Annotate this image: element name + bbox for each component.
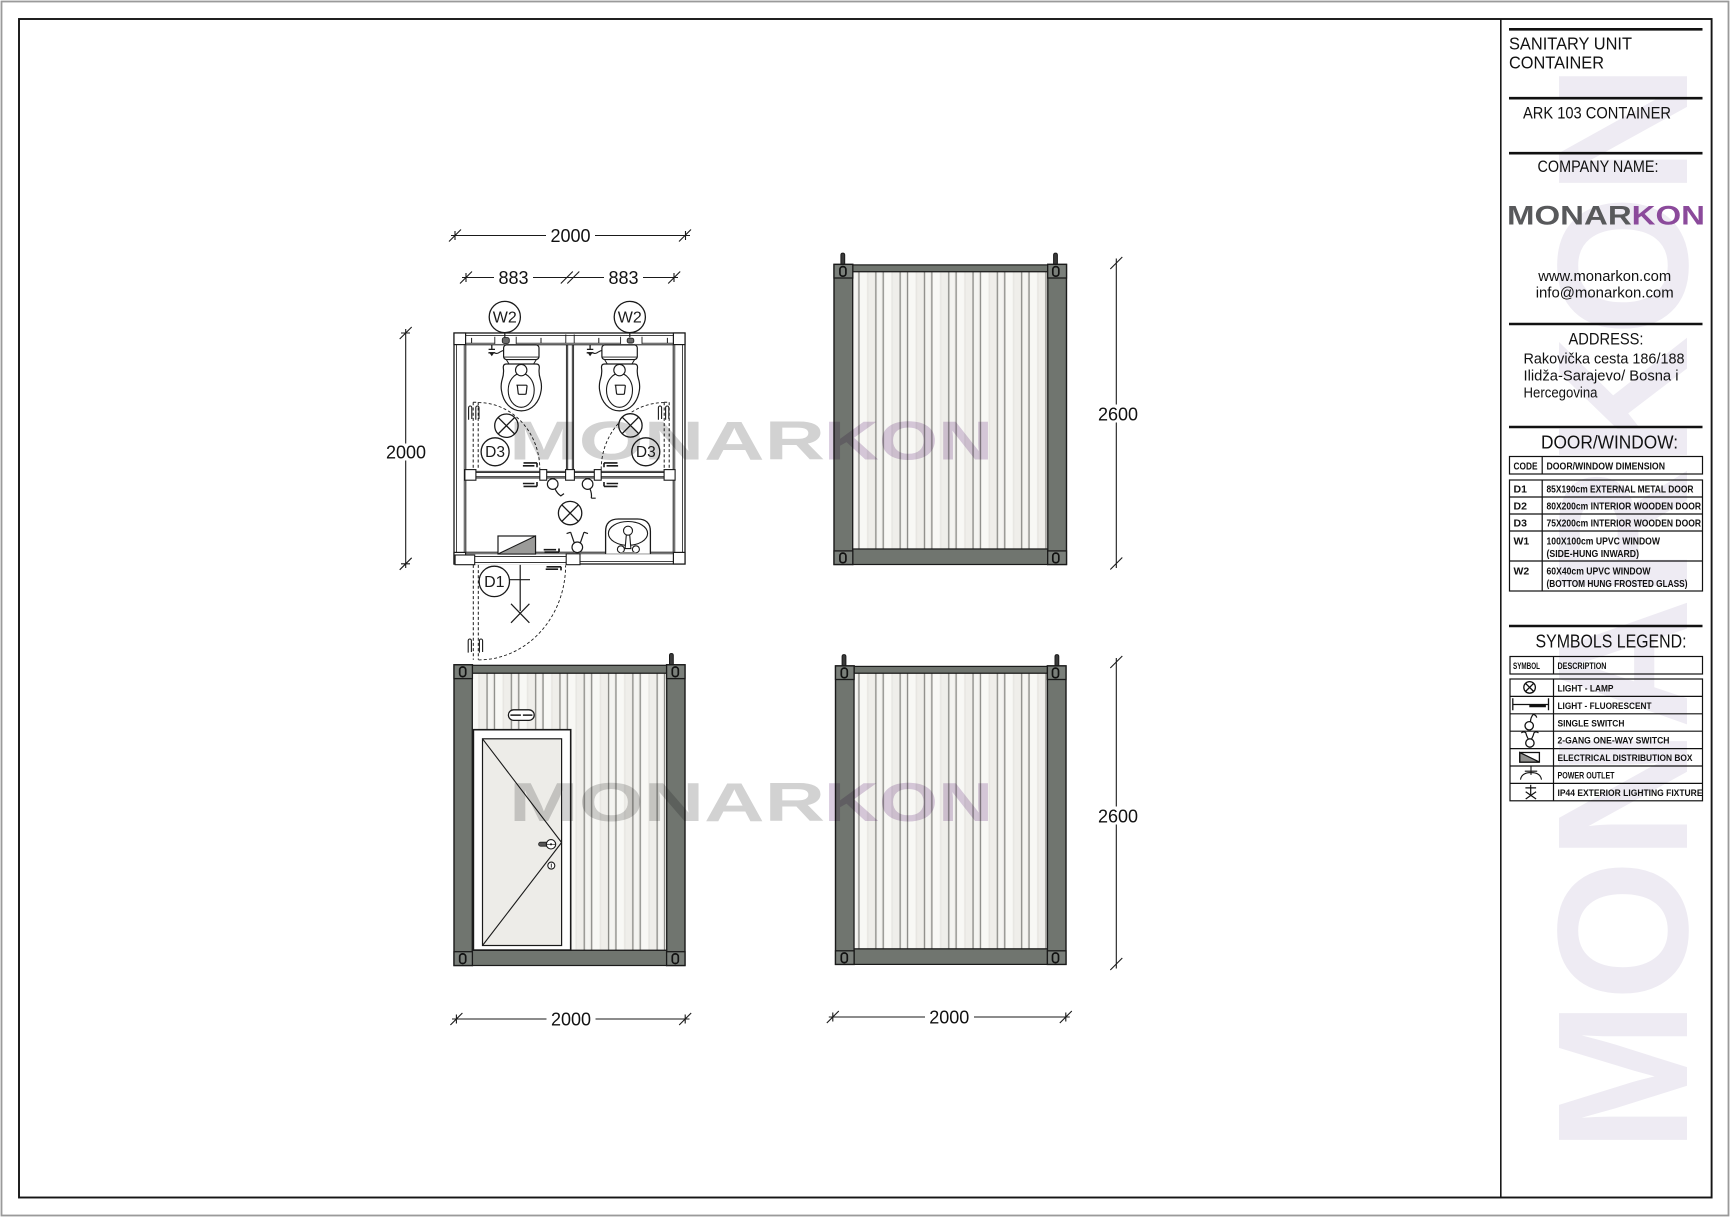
svg-text:SANITARY UNIT: SANITARY UNIT [1509, 34, 1632, 54]
svg-text:W2: W2 [493, 310, 517, 327]
svg-text:2000: 2000 [550, 226, 590, 246]
svg-text:60X40cm UPVC WINDOW: 60X40cm UPVC WINDOW [1547, 566, 1651, 578]
svg-text:www.monarkon.com: www.monarkon.com [1537, 268, 1671, 285]
svg-text:KON: KON [824, 410, 993, 472]
svg-text:D3: D3 [485, 444, 505, 461]
svg-text:85X190cm EXTERNAL METAL DOOR: 85X190cm EXTERNAL METAL DOOR [1547, 484, 1694, 496]
svg-text:ARK 103 CONTAINER: ARK 103 CONTAINER [1523, 104, 1671, 123]
svg-text:75X200cm INTERIOR WOODEN DOOR: 75X200cm INTERIOR WOODEN DOOR [1547, 518, 1702, 530]
svg-text:883: 883 [498, 268, 528, 288]
svg-text:CONTAINER: CONTAINER [1509, 53, 1604, 73]
svg-text:DESCRIPTION: DESCRIPTION [1558, 661, 1607, 672]
svg-text:MONAR: MONAR [509, 410, 825, 472]
svg-text:D1: D1 [1514, 484, 1528, 496]
svg-text:(BOTTOM HUNG FROSTED GLASS): (BOTTOM HUNG FROSTED GLASS) [1547, 578, 1688, 590]
svg-text:MONAR: MONAR [509, 771, 825, 833]
svg-text:DOOR/WINDOW DIMENSION: DOOR/WINDOW DIMENSION [1547, 461, 1666, 473]
svg-text:(SIDE-HUNG INWARD): (SIDE-HUNG INWARD) [1547, 548, 1640, 560]
svg-text:KON: KON [824, 771, 993, 833]
svg-text:W1: W1 [1514, 536, 1530, 548]
svg-text:883: 883 [608, 268, 638, 288]
svg-text:SINGLE SWITCH: SINGLE SWITCH [1558, 718, 1625, 729]
svg-text:ELECTRICAL DISTRIBUTION BOX: ELECTRICAL DISTRIBUTION BOX [1558, 753, 1694, 764]
svg-text:Hercegovina: Hercegovina [1524, 386, 1599, 402]
svg-text:W2: W2 [1514, 566, 1530, 578]
svg-text:SYMBOL: SYMBOL [1513, 661, 1540, 672]
svg-text:100X100cm UPVC WINDOW: 100X100cm UPVC WINDOW [1547, 536, 1661, 548]
svg-text:D3: D3 [1514, 518, 1528, 530]
svg-text:ADDRESS:: ADDRESS: [1569, 330, 1644, 349]
svg-text:COMPANY NAME:: COMPANY NAME: [1538, 157, 1659, 176]
svg-text:2000: 2000 [551, 1010, 591, 1030]
svg-text:D2: D2 [1514, 501, 1528, 513]
svg-text:2-GANG ONE-WAY SWITCH: 2-GANG ONE-WAY SWITCH [1558, 736, 1670, 747]
svg-text:D1: D1 [484, 574, 505, 591]
svg-text:IP44 EXTERIOR LIGHTING FIXTURE: IP44 EXTERIOR LIGHTING FIXTURE [1558, 788, 1703, 799]
svg-text:2600: 2600 [1098, 404, 1138, 424]
svg-text:DOOR/WINDOW:: DOOR/WINDOW: [1541, 433, 1678, 453]
svg-text:Rakovička cesta 186/188: Rakovička cesta 186/188 [1524, 352, 1685, 368]
svg-text:2000: 2000 [929, 1008, 969, 1028]
svg-text:CODE: CODE [1514, 462, 1538, 473]
svg-text:LIGHT - LAMP: LIGHT - LAMP [1558, 684, 1615, 695]
svg-text:SYMBOLS LEGEND:: SYMBOLS LEGEND: [1536, 632, 1687, 652]
svg-text:info@monarkon.com: info@monarkon.com [1536, 285, 1674, 302]
svg-text:2000: 2000 [386, 443, 426, 463]
svg-text:LIGHT - FLUORESCENT: LIGHT - FLUORESCENT [1558, 701, 1652, 712]
svg-text:80X200cm INTERIOR WOODEN DOOR: 80X200cm INTERIOR WOODEN DOOR [1547, 501, 1702, 513]
svg-text:Ilidža-Sarajevo/ Bosna i: Ilidža-Sarajevo/ Bosna i [1524, 369, 1679, 385]
svg-text:MONARKON: MONARKON [1507, 201, 1705, 231]
svg-text:POWER OUTLET: POWER OUTLET [1558, 771, 1615, 782]
svg-text:W2: W2 [618, 310, 642, 327]
svg-text:2600: 2600 [1098, 806, 1138, 826]
